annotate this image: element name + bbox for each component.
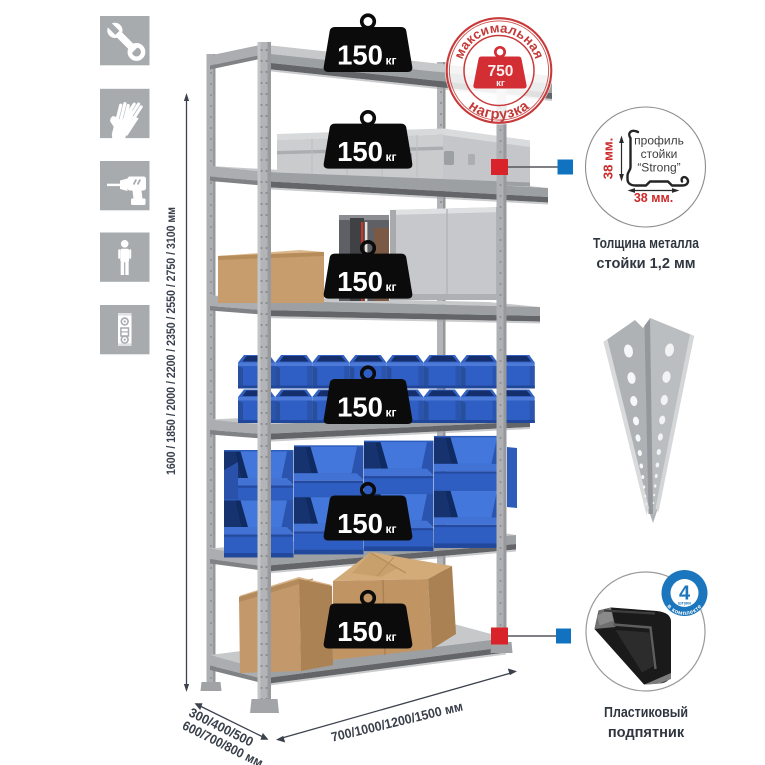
svg-text:38 мм.: 38 мм. — [634, 191, 673, 205]
svg-text:Пластиковый: Пластиковый — [604, 705, 688, 721]
svg-text:“Strong”: “Strong” — [637, 161, 680, 175]
svg-text:подпятник: подпятник — [608, 725, 685, 741]
svg-text:штуки: штуки — [678, 601, 691, 606]
svg-text:кг: кг — [496, 78, 505, 89]
svg-text:38 мм.: 38 мм. — [601, 138, 616, 180]
svg-text:профиль: профиль — [634, 134, 684, 148]
svg-text:Толщина металла: Толщина металла — [593, 236, 700, 252]
svg-text:стойки 1,2 мм: стойки 1,2 мм — [596, 256, 695, 272]
svg-text:1600 / 1850 / 2000 / 2200 / 23: 1600 / 1850 / 2000 / 2200 / 2350 / 2550 … — [164, 207, 178, 475]
svg-text:стойки: стойки — [641, 147, 678, 161]
